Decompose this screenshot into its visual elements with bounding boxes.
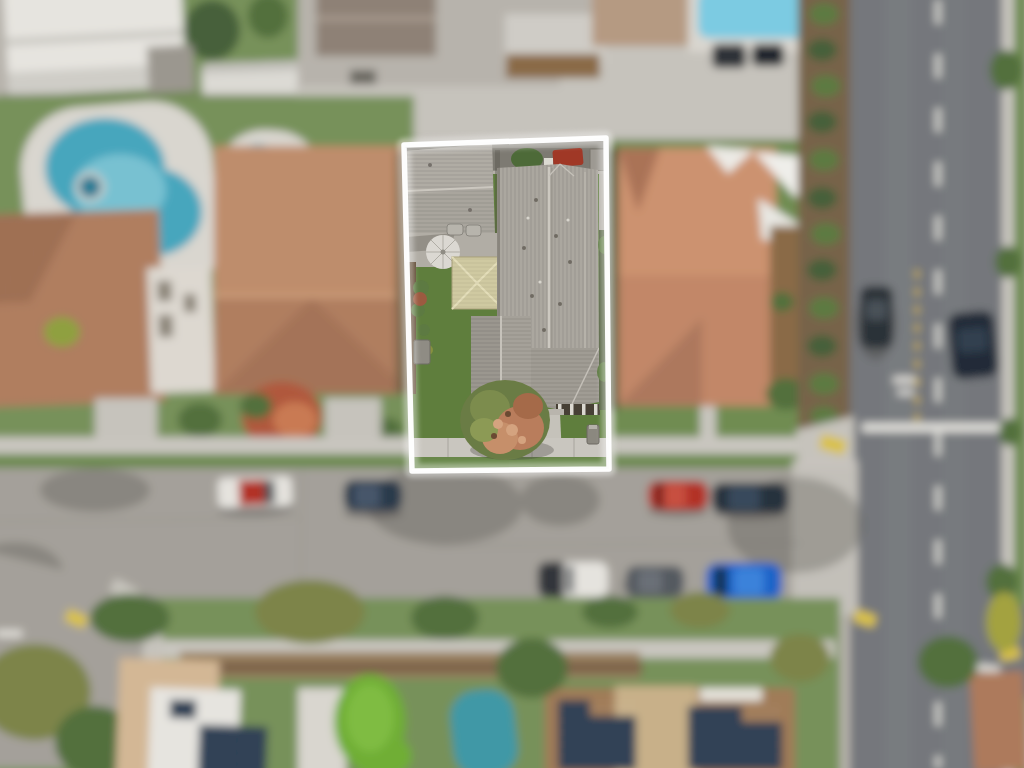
white-wall: [147, 265, 215, 393]
tree: [178, 403, 222, 437]
parked-car-navy-2: [712, 483, 788, 520]
parked-truck-white-red: [216, 476, 293, 518]
brown-gray-roof: [316, 0, 436, 56]
garage-roof: [406, 144, 500, 237]
back-fence: [178, 662, 642, 673]
subject-property: [400, 134, 614, 476]
house-right-roof: [618, 148, 776, 406]
car-cross-street-1: [856, 286, 896, 360]
ac-unit: [414, 340, 430, 364]
aerial-photo: Aerial drone photo of a residential lot …: [0, 0, 1024, 768]
right-neighborhood: [606, 140, 824, 469]
stop-line-left: [0, 630, 22, 637]
solar-house-right: [545, 686, 795, 768]
car-cross-street-2: [947, 310, 999, 380]
walkway: [700, 406, 716, 454]
parked-car-red: [648, 481, 708, 517]
front-yard-tree: [460, 380, 550, 460]
cart: [447, 224, 463, 235]
tan-roof-top: [592, 0, 702, 46]
pavement-legend: [893, 376, 915, 384]
driveway: [95, 398, 157, 440]
wood-deck-top: [506, 54, 600, 78]
aerial-photo-stage: Aerial drone photo of a residential lot …: [0, 0, 1024, 768]
tree: [990, 50, 1022, 90]
left-neighborhood: [0, 96, 414, 469]
shed-roof: [452, 257, 503, 309]
parked-car-navy-1: [343, 480, 403, 519]
cart: [466, 225, 481, 236]
terracotta-corner-house: [969, 671, 1024, 768]
spa: [77, 174, 103, 200]
bush: [44, 317, 80, 347]
gray-shed: [147, 45, 195, 93]
stop-bar: [862, 423, 1004, 432]
driveway: [325, 398, 381, 440]
house-left-b-roof: [214, 146, 412, 394]
